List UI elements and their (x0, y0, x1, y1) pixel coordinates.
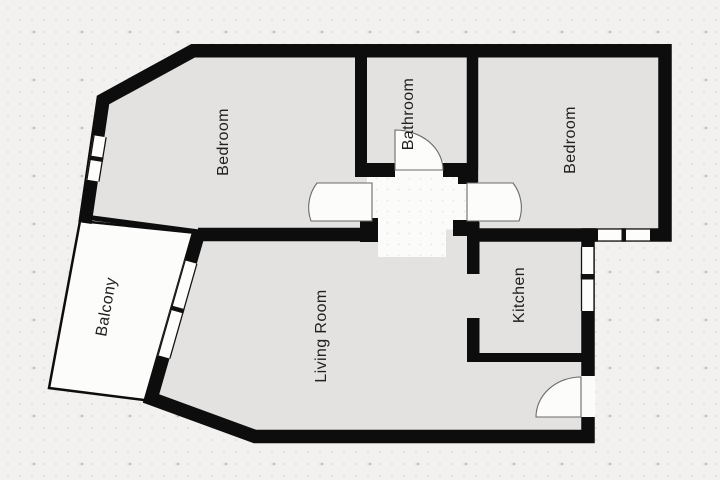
room-label-living-room: Living Room (313, 289, 330, 382)
floor-plan-canvas: Bedroom Bathroom Bedroom Kitchen Living … (0, 0, 720, 480)
door-arc-bedroom-left[interactable] (309, 183, 372, 221)
wall-kitchen-left-upper (467, 222, 480, 274)
room-label-bedroom-left: Bedroom (215, 108, 232, 176)
room-label-bathroom: Bathroom (400, 78, 417, 151)
room-label-bedroom-right: Bedroom (562, 106, 579, 174)
floor-plan-drawing: Bedroom Bathroom Bedroom Kitchen Living … (0, 0, 720, 480)
door-gap-entrance (581, 376, 596, 417)
room-kitchen[interactable] (470, 228, 590, 360)
window-bedroom-right[interactable] (598, 228, 650, 242)
wall-pier-hall-left (360, 218, 378, 242)
window-kitchen[interactable] (581, 247, 595, 311)
door-arc-bedroom-right[interactable] (467, 183, 521, 221)
room-label-kitchen: Kitchen (511, 267, 528, 323)
wall-kitchen-bottom (473, 353, 588, 362)
